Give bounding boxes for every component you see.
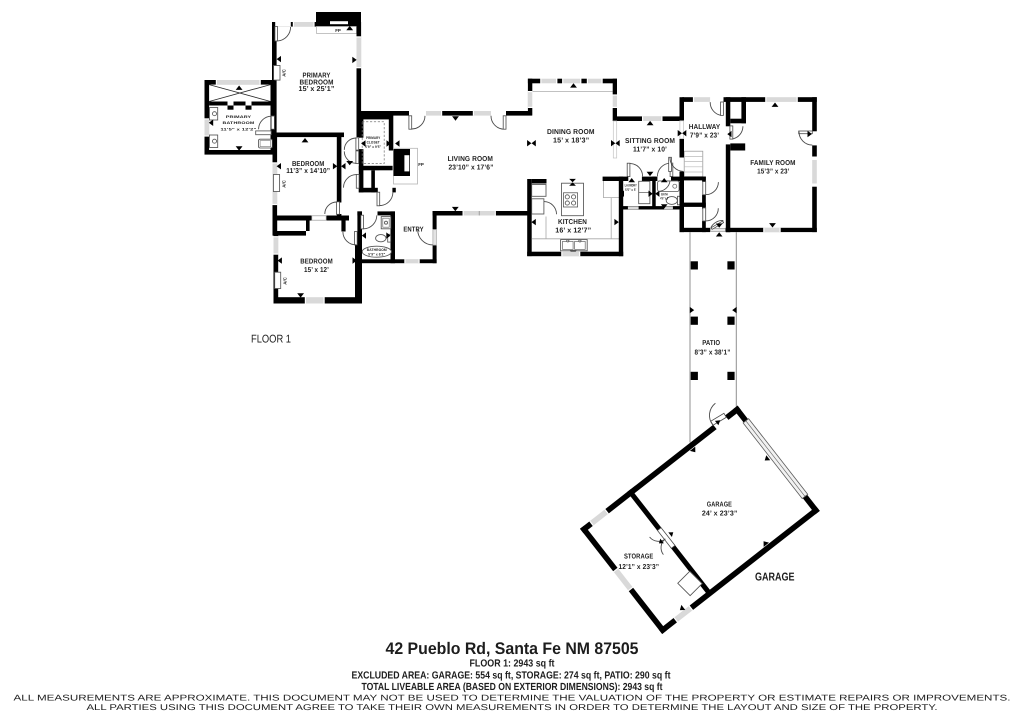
svg-text:5’9” x 9’5”: 5’9” x 9’5” <box>365 145 381 149</box>
svg-text:5’9” x 6’2”: 5’9” x 6’2” <box>368 252 385 256</box>
svg-text:STORAGE: STORAGE <box>624 553 654 561</box>
svg-text:11’5” x 12’2”: 11’5” x 12’2” <box>221 128 257 132</box>
svg-text:LAUNDRY: LAUNDRY <box>625 184 638 188</box>
svg-text:HALLWAY: HALLWAY <box>689 123 721 131</box>
svg-text:A/C: A/C <box>282 179 287 187</box>
svg-text:PATIO: PATIO <box>702 339 720 347</box>
svg-text:BEDROOM: BEDROOM <box>300 257 333 265</box>
svg-text:KITCHEN: KITCHEN <box>558 218 587 226</box>
svg-text:8’3” x 38’1”: 8’3” x 38’1” <box>695 348 731 356</box>
svg-text:7’9” x 23’: 7’9” x 23’ <box>690 132 719 140</box>
svg-text:24’ x 23’3”: 24’ x 23’3” <box>702 509 738 517</box>
svg-text:11’3” x 14’10”: 11’3” x 14’10” <box>286 167 330 175</box>
svg-text:5’5” x 5’: 5’5” x 5’ <box>625 188 636 192</box>
svg-text:11’7” x 10’: 11’7” x 10’ <box>633 146 667 154</box>
svg-text:BATHROOM: BATHROOM <box>223 121 255 125</box>
svg-text:23’10” x 17’6”: 23’10” x 17’6” <box>449 164 494 172</box>
svg-text:BATH: BATH <box>661 192 668 196</box>
svg-text:A/C: A/C <box>283 276 288 284</box>
svg-text:15’ x 25’1”: 15’ x 25’1” <box>299 85 335 93</box>
svg-text:LIVING ROOM: LIVING ROOM <box>448 155 493 163</box>
svg-text:4’6” x 5’: 4’6” x 5’ <box>660 197 669 201</box>
svg-text:FAMILY ROOM: FAMILY ROOM <box>750 159 795 167</box>
svg-text:ALL MEASUREMENTS ARE APPROXIMA: ALL MEASUREMENTS ARE APPROXIMATE. THIS D… <box>14 692 1011 702</box>
svg-text:SITTING ROOM: SITTING ROOM <box>625 137 675 145</box>
svg-text:A/C: A/C <box>281 68 286 76</box>
svg-text:CLOSET: CLOSET <box>367 141 381 145</box>
svg-text:GARAGE: GARAGE <box>755 572 795 584</box>
svg-text:15’ x 18’3”: 15’ x 18’3” <box>553 137 590 145</box>
svg-text:DINING ROOM: DINING ROOM <box>547 128 595 136</box>
svg-text:FP: FP <box>418 162 424 167</box>
svg-text:15’3” x 23’: 15’3” x 23’ <box>757 168 789 176</box>
svg-text:PRIMARY: PRIMARY <box>366 136 381 140</box>
svg-text:FLOOR 1: 2943 sq ft: FLOOR 1: 2943 sq ft <box>470 659 555 670</box>
svg-text:15’ x 12’: 15’ x 12’ <box>304 266 329 274</box>
svg-text:FP: FP <box>335 28 341 33</box>
svg-text:EXCLUDED AREA: GARAGE: 554 sq: EXCLUDED AREA: GARAGE: 554 sq ft, STORAG… <box>352 671 671 682</box>
svg-text:12’1” x 23’3”: 12’1” x 23’3” <box>619 563 660 571</box>
svg-text:42 Pueblo Rd, Santa Fe NM 8750: 42 Pueblo Rd, Santa Fe NM 87505 <box>386 639 639 658</box>
svg-text:FLOOR 1: FLOOR 1 <box>251 334 291 346</box>
svg-text:BATHROOM: BATHROOM <box>367 248 387 252</box>
svg-text:ENTRY: ENTRY <box>403 226 423 234</box>
svg-text:ALL PARTIES USING THIS DOCUMEN: ALL PARTIES USING THIS DOCUMENT AGREE TO… <box>87 702 938 712</box>
svg-text:16’ x 12’7”: 16’ x 12’7” <box>555 227 591 235</box>
svg-text:PRIMARY: PRIMARY <box>226 115 252 119</box>
svg-text:GARAGE: GARAGE <box>707 500 732 508</box>
